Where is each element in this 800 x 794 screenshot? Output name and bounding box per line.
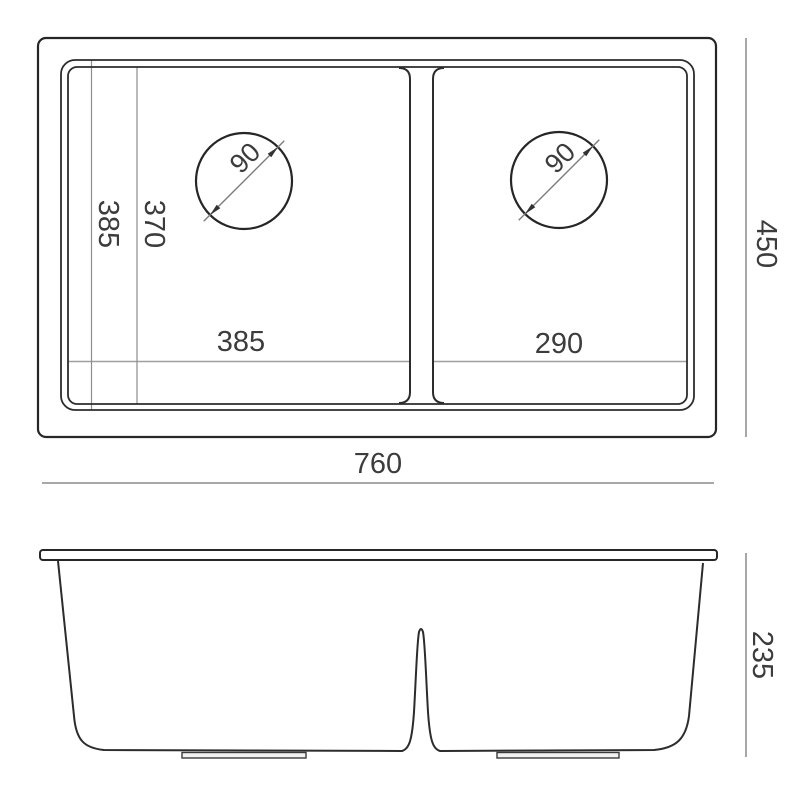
- drawing-canvas: 90 90 385 370 385 290 760 450: [0, 0, 800, 794]
- bowl-divider-right-line: [433, 68, 444, 403]
- right-drain-diameter-label: 90: [539, 137, 581, 179]
- bowl-inner-depth-label: 370: [138, 200, 170, 248]
- front-view: 235: [40, 550, 778, 758]
- sink-technical-drawing: 90 90 385 370 385 290 760 450: [0, 0, 800, 794]
- right-bowl-width-label: 290: [535, 328, 583, 360]
- front-right-foot-pad: [497, 753, 619, 759]
- divider-mask: [411, 70, 432, 402]
- bowl-divider-left-line: [399, 68, 410, 403]
- overall-height-label: 235: [746, 631, 778, 679]
- left-bowl-width-label: 385: [217, 326, 265, 358]
- left-drain-diameter-label: 90: [224, 137, 266, 179]
- right-drain: 90: [511, 132, 607, 228]
- overall-depth-label: 450: [750, 220, 782, 268]
- overall-width-label: 760: [354, 448, 402, 480]
- top-view: 90 90 385 370 385 290 760 450: [38, 38, 782, 483]
- left-drain: 90: [196, 133, 292, 229]
- front-sink-body-outline: [58, 561, 703, 751]
- front-counter-bar: [40, 550, 717, 560]
- front-left-foot-pad: [182, 753, 306, 759]
- bowl-outer-depth-label: 385: [92, 200, 124, 248]
